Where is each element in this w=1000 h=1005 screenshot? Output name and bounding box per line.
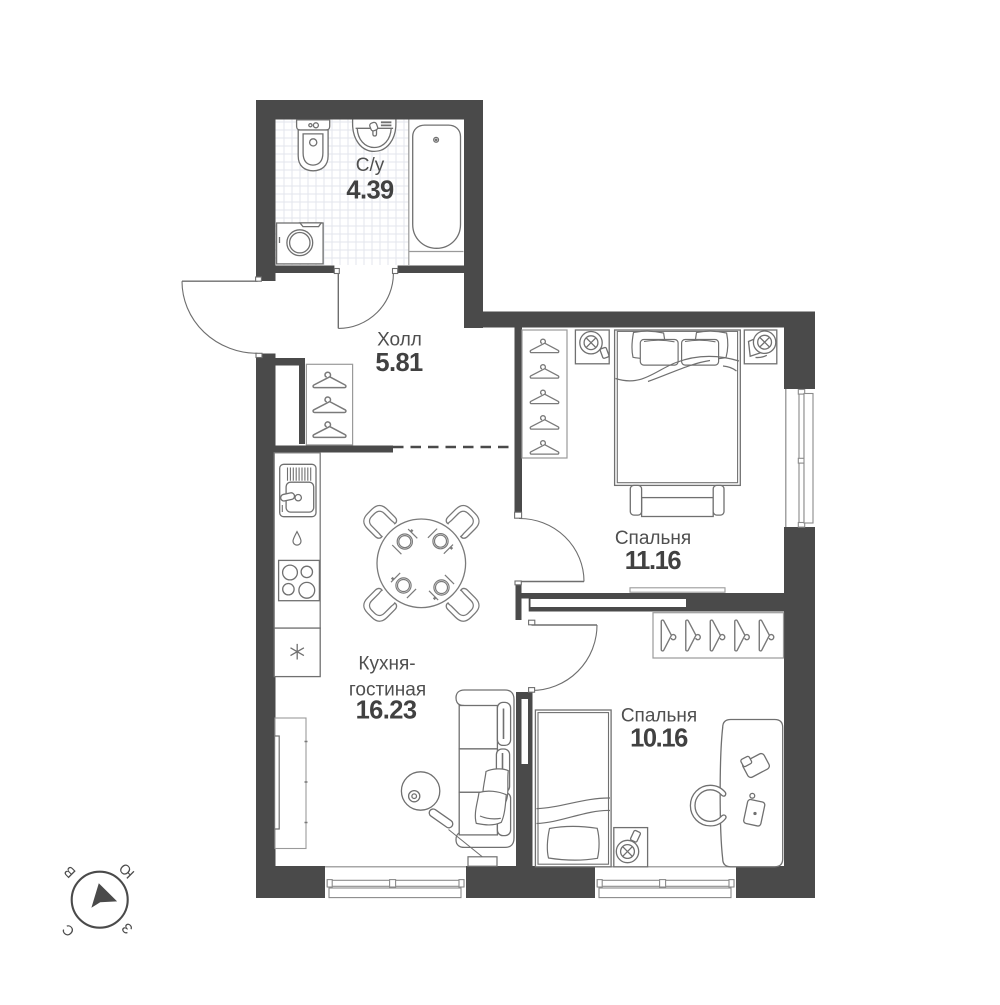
svg-text:4.39: 4.39 xyxy=(346,177,394,205)
svg-text:Спальня: Спальня xyxy=(621,706,697,727)
svg-text:10.16: 10.16 xyxy=(630,725,688,753)
svg-text:Кухня-: Кухня- xyxy=(358,654,415,675)
svg-text:11.16: 11.16 xyxy=(625,547,682,575)
svg-text:Холл: Холл xyxy=(377,330,422,351)
svg-text:Спальня: Спальня xyxy=(615,528,691,549)
svg-text:5.81: 5.81 xyxy=(375,349,423,377)
svg-text:С/у: С/у xyxy=(356,155,385,176)
svg-text:16.23: 16.23 xyxy=(356,697,417,725)
